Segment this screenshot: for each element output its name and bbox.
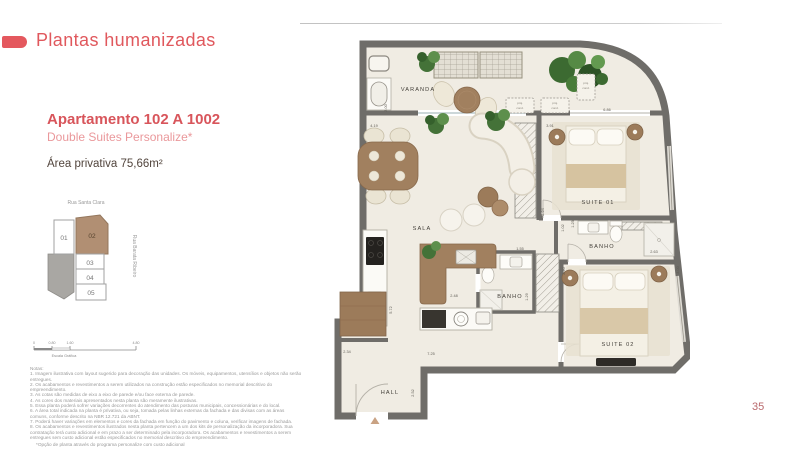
note-item: 8. Os acabamentos e revestimentos ilustr… <box>30 424 302 440</box>
room-label-banho1: BANHO <box>589 244 614 250</box>
room-label-hall: HALL <box>381 390 399 396</box>
proj-cond-label: proj. <box>583 81 589 85</box>
page-title: Plantas humanizadas <box>36 30 216 51</box>
wardrobe-suite2 <box>536 254 559 312</box>
street-label-right: Rua Barata Ribeiro <box>131 235 137 278</box>
toilet <box>482 267 494 283</box>
tv-console <box>596 358 636 366</box>
proj-cond-label: proj. <box>517 101 523 105</box>
proj-cond-label: cond. <box>516 106 524 110</box>
dim-label: 7.25 <box>427 352 434 356</box>
dim-label: 1.29 <box>525 293 529 300</box>
dim-label: 2.00 <box>384 104 388 111</box>
apartment-variant: Double Suites Personalize* <box>47 130 192 144</box>
dim-label: 2.90 <box>562 267 566 274</box>
dim-label: 1.02 <box>561 224 565 231</box>
apartment-name: Apartamento 102 A 1002 <box>47 111 220 128</box>
accent-dash-icon <box>2 36 27 48</box>
note-item: 6. A área total indicada na planta é pri… <box>30 408 302 419</box>
hall-closet <box>340 292 386 336</box>
side-table <box>492 200 508 216</box>
dim-label: 5.72 <box>389 306 393 313</box>
service-niche-icon <box>369 56 389 71</box>
dim-label: 2.63 <box>650 250 657 254</box>
scale-label: 0.80 <box>49 341 56 345</box>
unit-label: 04 <box>86 275 94 282</box>
dim-label: 2.34 <box>343 350 350 354</box>
dim-label: 3.00 <box>676 266 680 273</box>
proj-cond-label: proj. <box>552 101 558 105</box>
scale-bar: 0 0.80 1.60 4.80 Escala Gráfica <box>30 337 142 359</box>
note-item: 2. Os acabamentos e revestimentos a sere… <box>30 382 302 393</box>
dim-label: 3.91 <box>546 124 553 128</box>
dining-table <box>358 142 418 190</box>
legal-notes: Notas: 1. Imagem ilustrativa com layout … <box>30 366 302 447</box>
dim-label: 1.55 <box>516 247 523 251</box>
toilet <box>610 226 622 242</box>
pouf <box>463 204 485 226</box>
dim-label: 2.52 <box>411 389 415 396</box>
dim-label: 1.25 <box>571 220 575 227</box>
unit-label: 01 <box>60 235 68 242</box>
appliance <box>422 310 446 328</box>
basin <box>454 312 468 326</box>
room-label-banho2: BANHO <box>497 294 522 300</box>
suite1-furniture <box>549 122 643 210</box>
scale-label: 0 <box>33 341 35 345</box>
pouf <box>440 209 462 231</box>
brochure-page: Plantas humanizadas Apartamento 102 A 10… <box>0 0 800 450</box>
scale-label: 1.60 <box>67 341 74 345</box>
unit-label: 02 <box>88 233 96 240</box>
unit-label: 05 <box>87 290 95 297</box>
floor-plan: proj. cond. proj. cond. proj. cond. <box>330 24 690 424</box>
room-label-suite1: SUITE 01 <box>581 200 614 206</box>
room-label-sala: SALA <box>413 226 432 232</box>
note-item: 1. Imagem ilustrativa com layout sugerid… <box>30 371 302 382</box>
room-label-varanda: VARANDA <box>401 87 435 93</box>
suite2-furniture <box>562 266 670 366</box>
scale-caption: Escala Gráfica <box>52 354 78 358</box>
dim-label: 2.48 <box>450 294 457 298</box>
street-label-top: Rua Santa Clara <box>68 200 105 206</box>
keyplan-common-area <box>48 254 74 299</box>
proj-cond-label: cond. <box>551 106 559 110</box>
note-footnote: *Opção de planta através do programa per… <box>30 442 302 447</box>
key-plan: Rua Santa Clara Rua Barata Ribeiro 01 02… <box>36 194 140 306</box>
scale-label: 4.80 <box>133 341 140 345</box>
apartment-area: Área privativa 75,66m² <box>47 158 163 170</box>
dim-label: 4.19 <box>370 124 377 128</box>
unit-label: 03 <box>86 260 94 267</box>
water-heater <box>371 82 387 106</box>
page-number: 35 <box>752 401 764 413</box>
dim-label: 2.94 <box>541 208 545 215</box>
dim-label: 6.86 <box>603 108 610 112</box>
room-label-suite2: SUITE 02 <box>601 342 634 348</box>
proj-cond-label: cond. <box>582 86 590 90</box>
